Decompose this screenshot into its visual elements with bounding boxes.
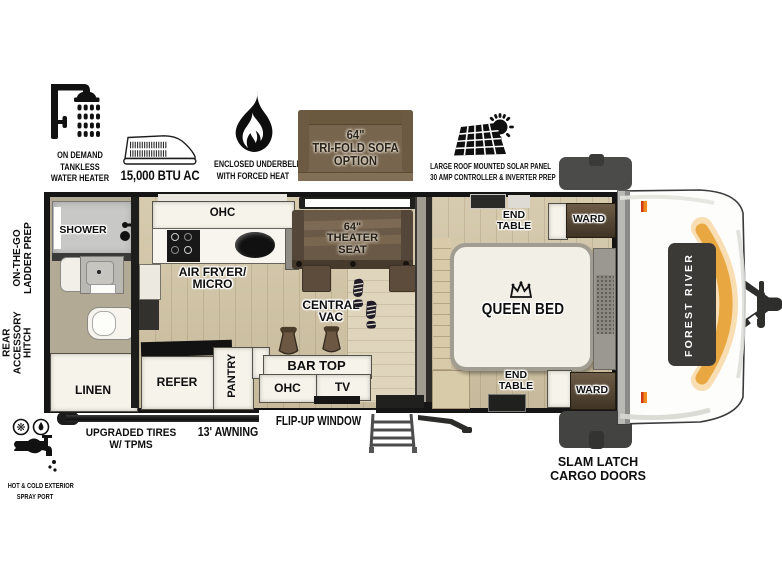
svg-text:FOREST RIVER: FOREST RIVER xyxy=(683,253,695,357)
svg-text:❋: ❋ xyxy=(16,422,25,434)
